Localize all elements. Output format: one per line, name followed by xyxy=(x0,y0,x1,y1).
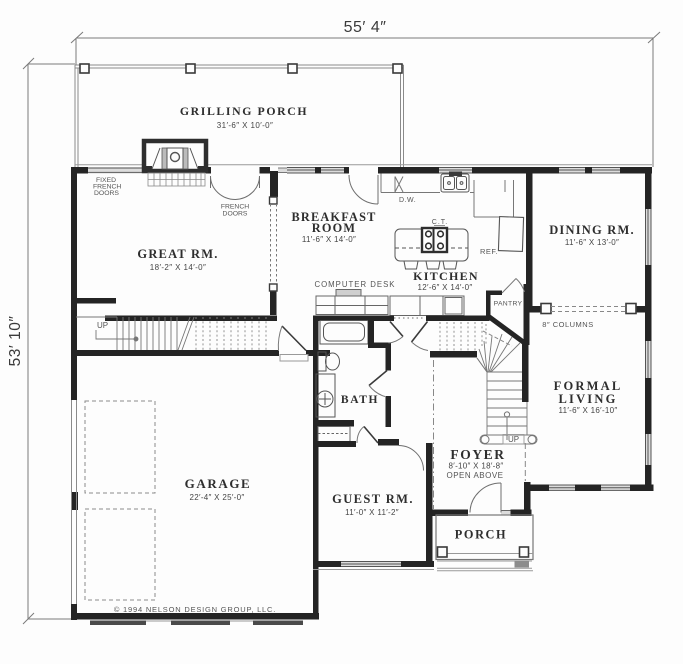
svg-text:DINING RM.: DINING RM. xyxy=(549,223,635,237)
svg-text:GARAGE: GARAGE xyxy=(185,476,252,491)
svg-text:11′-6″ X 16′-10″: 11′-6″ X 16′-10″ xyxy=(558,406,617,415)
svg-text:PORCH: PORCH xyxy=(455,528,507,542)
svg-text:REF.: REF. xyxy=(480,247,498,256)
svg-text:OPEN ABOVE: OPEN ABOVE xyxy=(446,471,503,480)
svg-text:11′-0″ X 11′-2″: 11′-0″ X 11′-2″ xyxy=(345,508,399,517)
svg-text:18′-2″ X 14′-0″: 18′-2″ X 14′-0″ xyxy=(150,263,206,272)
svg-text:DOORS: DOORS xyxy=(223,211,248,218)
svg-text:GREAT RM.: GREAT RM. xyxy=(137,247,218,261)
svg-text:FORMAL: FORMAL xyxy=(554,379,623,393)
svg-text:8′-10″ X 18′-8″: 8′-10″ X 18′-8″ xyxy=(449,462,504,471)
svg-text:11′-6″ X 13′-0″: 11′-6″ X 13′-0″ xyxy=(565,238,619,247)
svg-text:GRILLING PORCH: GRILLING PORCH xyxy=(180,104,308,118)
svg-text:GUEST RM.: GUEST RM. xyxy=(332,492,414,506)
svg-text:COMPUTER DESK: COMPUTER DESK xyxy=(314,280,395,289)
svg-text:ROOM: ROOM xyxy=(312,221,356,235)
svg-text:UP: UP xyxy=(508,435,519,444)
svg-text:FOYER: FOYER xyxy=(450,447,505,462)
svg-text:DOORS: DOORS xyxy=(94,190,119,197)
svg-text:22′-4″ X 25′-0″: 22′-4″ X 25′-0″ xyxy=(190,493,245,502)
svg-text:LIVING: LIVING xyxy=(558,392,617,406)
svg-text:31′-6″ X 10′-0″: 31′-6″ X 10′-0″ xyxy=(217,121,273,130)
svg-text:FRENCH: FRENCH xyxy=(221,204,249,211)
svg-text:11′-6″ X 14′-0″: 11′-6″ X 14′-0″ xyxy=(302,235,356,244)
svg-text:C.T.: C.T. xyxy=(432,219,448,226)
svg-text:53′ 10″: 53′ 10″ xyxy=(7,316,24,367)
svg-text:UP: UP xyxy=(97,321,108,330)
svg-text:PANTRY: PANTRY xyxy=(494,301,523,308)
svg-text:BATH: BATH xyxy=(341,394,379,406)
svg-text:12′-6″ X 14′-0″: 12′-6″ X 14′-0″ xyxy=(418,283,473,292)
svg-text:55′ 4″: 55′ 4″ xyxy=(344,19,387,36)
svg-text:D.W.: D.W. xyxy=(399,197,416,204)
svg-text:KITCHEN: KITCHEN xyxy=(413,269,479,283)
svg-text:© 1994 NELSON DESIGN GROUP, LL: © 1994 NELSON DESIGN GROUP, LLC. xyxy=(114,605,276,614)
svg-text:8″ COLUMNS: 8″ COLUMNS xyxy=(542,320,593,329)
